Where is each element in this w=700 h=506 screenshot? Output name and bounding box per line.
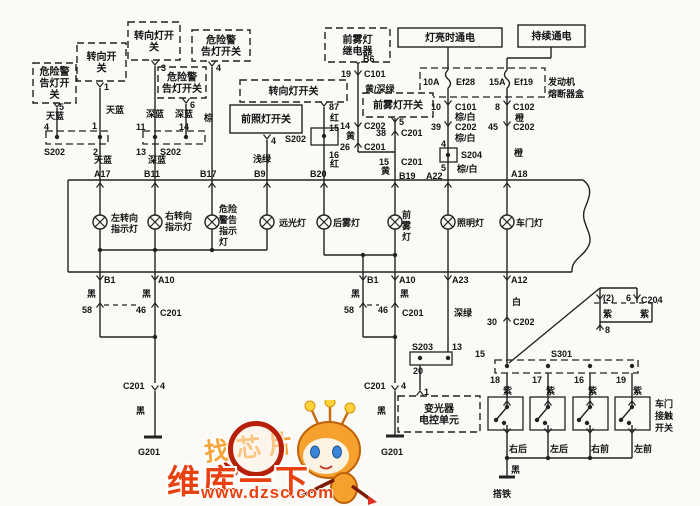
pin-label: 4 — [271, 136, 276, 146]
junction-dot — [184, 135, 188, 139]
pin-label: 58 — [82, 305, 92, 315]
wire-color-label: 黑 — [136, 406, 145, 416]
wire-color-label: 天蓝 — [106, 104, 124, 115]
ground-label: G201 — [381, 447, 403, 457]
junction-dot — [446, 153, 450, 157]
connector-label: C202 — [455, 122, 477, 132]
connector-label: C101 — [364, 69, 386, 79]
wire-color-label: 深蓝 — [148, 154, 166, 165]
wire-color-label: 天蓝 — [94, 154, 112, 165]
arrow-down-icon — [392, 386, 399, 391]
connector-label: C201 — [160, 308, 182, 318]
lamp-label: 雾 — [401, 220, 412, 231]
s301-strip — [495, 360, 638, 373]
pin-label: 6 — [626, 293, 631, 303]
pin-label: 13 — [452, 342, 462, 352]
pin-label: 87 — [329, 102, 339, 112]
pin-label: 26 — [340, 142, 350, 152]
wire-color-label: 黑 — [511, 465, 520, 475]
pin-label: 13 — [136, 147, 146, 157]
pin-label: 45 — [488, 122, 498, 132]
wire-color-label: 棕 — [203, 112, 213, 123]
pin-label: 10 — [431, 102, 441, 112]
junction-dot — [210, 248, 214, 252]
component-label: 右前 — [590, 443, 609, 454]
lamp-label: 前 — [402, 209, 411, 220]
junction-dot — [55, 135, 59, 139]
pin-label: B19 — [399, 171, 416, 181]
hazard-warning-light-switch-3-label: 危险警告灯开关 — [201, 33, 241, 58]
wire-color-label: 红 — [330, 112, 339, 123]
junction-dot — [505, 456, 509, 460]
s203-connector — [410, 352, 452, 365]
junction-dot — [577, 418, 581, 422]
pin-label: 39 — [431, 122, 441, 132]
pin-label: 19 — [341, 69, 351, 79]
connector-label: C202 — [513, 317, 535, 327]
pin-label: 8 — [605, 325, 610, 335]
connector-label: S202 — [285, 134, 306, 144]
door-contact-switch-rr — [488, 397, 523, 430]
pin-label: 4 — [216, 63, 221, 73]
junction-dot — [153, 248, 157, 252]
junction-dot — [322, 134, 326, 138]
pin-label: 17 — [532, 375, 542, 385]
component-label: 接触 — [655, 410, 673, 421]
lamp-label: 远光灯 — [279, 217, 306, 228]
wire-color-label: 深蓝 — [146, 108, 164, 119]
wire-color-label: 黑 — [142, 289, 151, 299]
pin-label: 46 — [378, 305, 388, 315]
wire-color-label: 白 — [512, 296, 521, 307]
arrow-down-icon — [183, 99, 190, 104]
pin-label: 11 — [136, 122, 146, 132]
junction-dot — [494, 418, 498, 422]
junction-dot — [546, 456, 550, 460]
fuse-icon — [446, 70, 451, 88]
pin-label: 4 — [441, 139, 446, 149]
wiring-diagram: 危险警告灯开关转向开关转向灯开关危险警告灯开关危险警告灯开关转向灯开关前照灯开关… — [0, 0, 700, 506]
lamp-label: 灯 — [402, 231, 411, 242]
lamp-label: 车门灯 — [516, 217, 543, 228]
junction-dot — [585, 421, 589, 425]
wire — [496, 407, 507, 420]
pin-label: 15 — [329, 123, 339, 133]
arrow-down-icon — [152, 61, 159, 66]
wire-color-label: 紫 — [588, 385, 597, 396]
wire-color-label: 橙 — [514, 147, 524, 158]
pin-label: A10 — [158, 275, 175, 285]
component-label: 右后 — [508, 443, 527, 454]
wire-color-label: 棕/白 — [456, 163, 478, 174]
s202-strip-b — [143, 131, 205, 144]
pin-label: 14 — [340, 121, 350, 131]
junction-dot — [543, 421, 547, 425]
fuse-label: 15A — [489, 77, 506, 87]
lamp-label: 指示 — [219, 225, 237, 236]
pin-label: 1 — [104, 82, 109, 92]
pin-label: 1 — [92, 121, 97, 131]
lamp-label: 危险 — [218, 203, 238, 214]
junction-dot — [546, 364, 550, 368]
arrow-down-icon — [97, 83, 104, 88]
pin-label: 6 — [190, 100, 195, 110]
connector-label: C201 — [402, 308, 424, 318]
headlamp-switch-label: 前照灯开关 — [241, 113, 291, 126]
junction-dot — [98, 248, 102, 252]
lamp-label: 照明灯 — [457, 217, 484, 228]
fuse-label: Ef19 — [514, 77, 533, 87]
component-label: 左后 — [549, 443, 568, 454]
pin-label: A17 — [94, 169, 111, 179]
connector-label: C201 — [401, 157, 423, 167]
connector-label: C204 — [641, 295, 663, 305]
wire-color-label: 深绿 — [454, 307, 473, 318]
junction-dot — [588, 456, 592, 460]
junction-dot — [505, 405, 509, 409]
ground-label: G201 — [138, 447, 160, 457]
component-label: 发动机 — [547, 76, 575, 87]
wire-color-label: 黄/深绿 — [365, 83, 396, 94]
wire-color-label: 棕/白 — [454, 132, 476, 143]
pin-label: A12 — [511, 275, 528, 285]
wire-color-label: 黑 — [87, 289, 96, 299]
wire-color-label: 棕/白 — [454, 111, 476, 122]
junction-dot — [588, 405, 592, 409]
arrow-down-icon — [264, 135, 271, 140]
connector-label: C202 — [513, 122, 535, 132]
wire-color-label: 黑 — [351, 289, 360, 299]
pin-label: A22 — [426, 171, 443, 181]
power-continuous-label: 持续通电 — [532, 30, 572, 43]
junction-dot — [361, 253, 365, 257]
pin-label: 19 — [616, 375, 626, 385]
pin-label: 15 — [475, 349, 485, 359]
junction-dot — [153, 335, 157, 339]
pin-label: 38 — [376, 128, 386, 138]
pin-label: A18 — [511, 169, 528, 179]
cluster-torn-edge — [572, 180, 590, 272]
pin-label: A10 — [399, 275, 416, 285]
wire-color-label: 紫 — [633, 385, 642, 396]
arrow-up-icon — [417, 391, 424, 396]
wire — [579, 407, 590, 420]
dimmer-ecu-label: 变光器电控单元 — [419, 402, 459, 427]
junction-dot — [546, 405, 550, 409]
ground-label: 搭铁 — [493, 488, 511, 499]
junction-dot — [393, 253, 397, 257]
connector-label: S203 — [412, 342, 433, 352]
connector-label: C201 — [123, 381, 145, 391]
junction-dot — [153, 135, 157, 139]
junction-dot — [446, 356, 450, 360]
pin-label: 16 — [574, 375, 584, 385]
pin-label: 4 — [401, 381, 406, 391]
pin-label: B1 — [367, 275, 379, 285]
fuse-label: 10A — [423, 77, 440, 87]
pin-label: 8 — [495, 102, 500, 112]
wire-color-label: 紫 — [640, 308, 649, 319]
wire-color-label: 天蓝 — [46, 110, 64, 121]
pin-label: A23 — [452, 275, 469, 285]
pin-label: 20 — [413, 366, 423, 376]
pin-label: 58 — [344, 305, 354, 315]
hazard-warning-light-switch-2-label: 危险警告灯开关 — [162, 70, 202, 95]
pin-label: B9 — [254, 169, 266, 179]
connector-label: S202 — [44, 147, 65, 157]
pin-label: 18 — [490, 375, 500, 385]
wire — [537, 407, 548, 420]
wire-color-label: 红 — [330, 158, 339, 169]
pin-label: 5 — [399, 117, 404, 127]
pin-label: B17 — [200, 169, 217, 179]
power-when-lights-on-label: 灯亮时通电 — [425, 31, 475, 44]
connector-label: C102 — [513, 102, 535, 112]
wire-color-label: 紫 — [546, 385, 555, 396]
lamp-label: 左转向 — [110, 212, 138, 223]
turn-lamp-switch-2-label: 转向灯开关 — [269, 85, 319, 98]
junction-dot — [505, 364, 509, 368]
wire — [621, 407, 632, 420]
junction-dot — [418, 356, 422, 360]
junction-dot — [502, 421, 506, 425]
pin-label: 4 — [160, 381, 165, 391]
connector-label: C201 — [364, 381, 386, 391]
arrow-down-icon — [152, 386, 159, 391]
arrow-down-icon — [209, 62, 216, 67]
wire-color-label: 浅绿 — [253, 153, 272, 164]
junction-dot — [619, 418, 623, 422]
wire-color-label: 紫 — [603, 308, 612, 319]
pin-label: B6 — [363, 54, 375, 64]
wire-color-label: 紫 — [503, 385, 512, 396]
connector-label: S204 — [461, 150, 482, 160]
lamp-label: 警告 — [219, 214, 237, 225]
pin-label: 30 — [487, 317, 497, 327]
connector-label: C201 — [364, 142, 386, 152]
pin-label: B11 — [144, 169, 160, 179]
wire-color-label: 黄 — [346, 130, 355, 141]
pin-label: 14 — [179, 122, 189, 132]
connector-label: C101 — [455, 102, 477, 112]
pin-label: 46 — [136, 305, 146, 315]
lamp-label: 指示灯 — [111, 223, 138, 234]
pin-label: 1 — [424, 387, 429, 397]
pin-label: 3 — [161, 63, 166, 73]
pin-label: B20 — [310, 169, 327, 179]
fuse-label: Ef28 — [456, 77, 475, 87]
pin-label: (2) — [603, 293, 614, 303]
component-label: 开关 — [655, 422, 673, 433]
lamp-label: 后雾灯 — [333, 217, 360, 228]
wiring-diagram-page: 危险警告灯开关转向开关转向灯开关危险警告灯开关危险警告灯开关转向灯开关前照灯开关… — [0, 0, 700, 506]
junction-dot — [630, 405, 634, 409]
connector-label: S301 — [551, 349, 572, 359]
wire-color-label: 黑 — [400, 289, 409, 299]
junction-dot — [393, 335, 397, 339]
pin-label: 4 — [44, 122, 49, 132]
junction-dot — [588, 364, 592, 368]
junction-dot — [627, 421, 631, 425]
junction-dot — [98, 135, 102, 139]
wire-color-label: 黄 — [381, 165, 390, 176]
lamp-label: 灯 — [219, 236, 228, 247]
component-label: 车门 — [655, 398, 673, 409]
lamp-label: 右转向 — [164, 210, 192, 221]
component-label: 熔断器盒 — [548, 88, 585, 99]
junction-dot — [630, 364, 634, 368]
junction-dot — [535, 418, 539, 422]
lamp-label: 指示灯 — [165, 221, 192, 232]
pin-label: B1 — [104, 275, 116, 285]
front-fog-switch-label: 前雾灯开关 — [373, 99, 423, 112]
connector-label: C201 — [401, 128, 423, 138]
component-label: 左前 — [633, 443, 652, 454]
wire-color-label: 黑 — [377, 406, 386, 416]
